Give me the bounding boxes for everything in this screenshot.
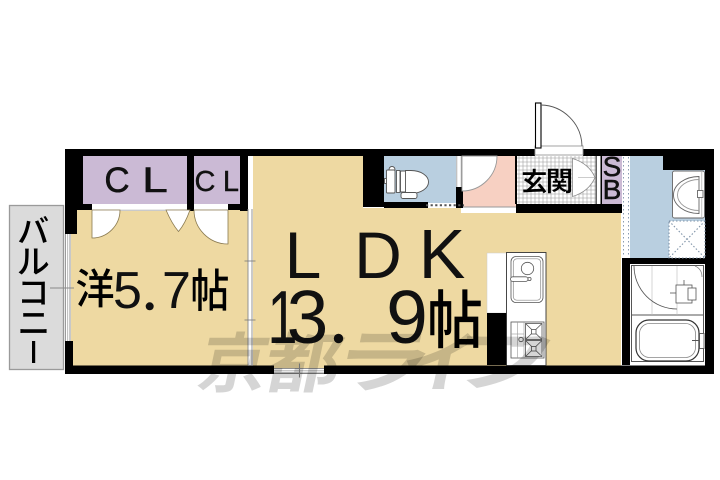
svg-text:L: L: [142, 160, 168, 199]
svg-text:L: L: [223, 166, 239, 198]
svg-text:5: 5: [113, 262, 142, 320]
svg-text:9: 9: [386, 275, 428, 359]
svg-text:7: 7: [162, 262, 191, 320]
svg-text:B: B: [603, 174, 622, 205]
svg-text:C: C: [195, 166, 216, 198]
svg-text:C: C: [104, 161, 129, 200]
